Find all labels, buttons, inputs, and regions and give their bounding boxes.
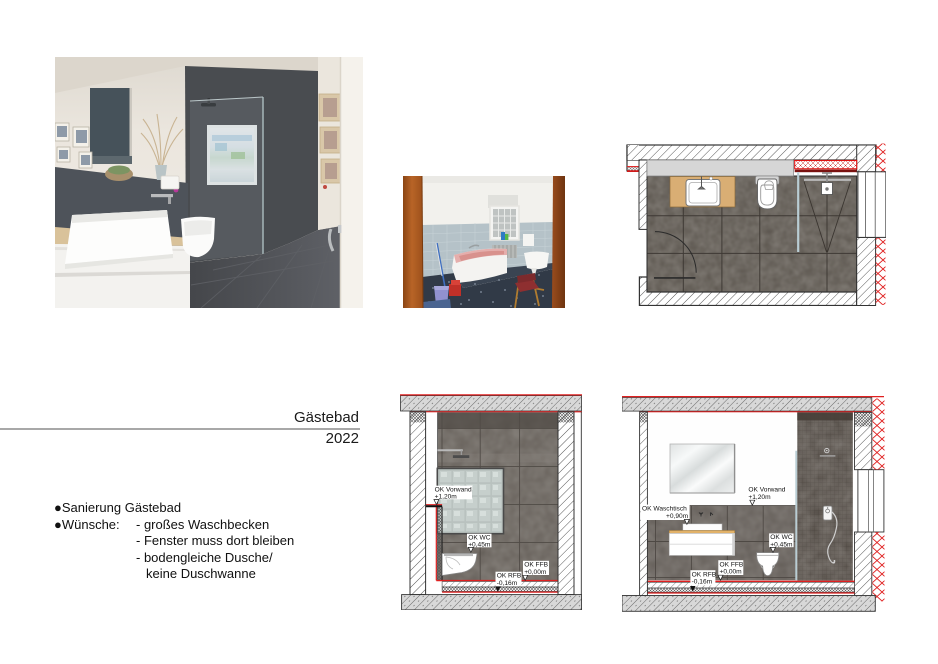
svg-text:OK Vorwand: OK Vorwand: [435, 486, 472, 493]
svg-text:OK WC: OK WC: [468, 534, 491, 541]
svg-text:-0,16m: -0,16m: [692, 579, 713, 586]
svg-text:OK WC: OK WC: [770, 534, 793, 541]
svg-text:OK FFB: OK FFB: [720, 561, 744, 568]
svg-text:-0,16m: -0,16m: [497, 580, 518, 587]
svg-text:OK RFB: OK RFB: [692, 571, 717, 578]
svg-text:+1,20m: +1,20m: [748, 494, 771, 501]
svg-text:+0,00m: +0,00m: [524, 569, 547, 576]
svg-text:+0,90m: +0,90m: [666, 513, 689, 520]
svg-text:OK RFB: OK RFB: [497, 573, 522, 580]
svg-text:OK Vorwand: OK Vorwand: [748, 487, 785, 494]
svg-text:OK Waschtisch: OK Waschtisch: [642, 506, 687, 513]
svg-text:+0,00m: +0,00m: [720, 569, 743, 576]
svg-text:OK FFB: OK FFB: [524, 562, 548, 569]
